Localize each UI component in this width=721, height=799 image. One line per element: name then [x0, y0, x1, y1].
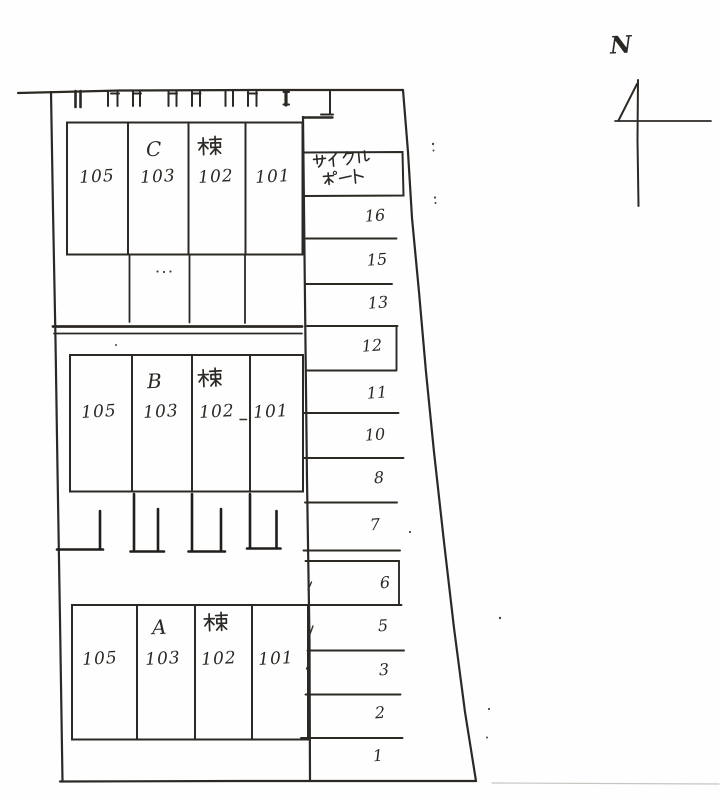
fence-double-line — [53, 327, 302, 334]
cycle-port-label-line2: ポート — [322, 170, 367, 185]
parking-stall-label-2: 2 — [364, 704, 395, 722]
building-b-letter: B — [147, 371, 162, 392]
building-c-suffix: 棟 — [196, 134, 218, 156]
parking-stall-label-11: 11 — [361, 384, 392, 402]
north-label: N — [609, 32, 632, 57]
unit-label-c-102: 102 — [193, 168, 240, 187]
unit-label-b-101: 101 — [248, 403, 295, 422]
unit-label-a-101: 101 — [253, 650, 300, 669]
building-a-letter: A — [152, 617, 167, 637]
plan-linework — [0, 0, 721, 799]
unit-label-b-103: 103 — [138, 403, 185, 422]
parking-stall-label-3: 3 — [368, 661, 399, 679]
building-c-letter: C — [146, 139, 162, 160]
unit-label-c-103: 103 — [135, 168, 182, 187]
unit-label-b-105: 105 — [76, 403, 123, 422]
parking-stall-label-15: 15 — [361, 251, 392, 269]
north-arrow — [615, 80, 711, 206]
parking-stall-label-8: 8 — [363, 469, 394, 487]
parking-stall-label-6: 6 — [369, 574, 400, 592]
north-fence-stubs — [76, 91, 334, 118]
parking-stall-label-10: 10 — [359, 426, 390, 444]
site-plan-scan: N C 棟 105 103 102 101 B 棟 105 103 102 10… — [0, 0, 721, 799]
porch-structures — [57, 494, 281, 552]
unit-label-c-101: 101 — [250, 168, 297, 187]
unit-label-c-105: 105 — [74, 168, 121, 187]
parking-stall-label-5: 5 — [367, 617, 398, 635]
parking-stall-label-12: 12 — [356, 337, 387, 355]
parking-stall-label-1: 1 — [362, 747, 393, 765]
parking-stall-label-16: 16 — [359, 207, 390, 225]
building-a-suffix: 棟 — [202, 610, 224, 632]
unit-label-a-103: 103 — [140, 650, 187, 669]
building-c-outline — [67, 123, 303, 324]
unit-label-a-105: 105 — [77, 650, 124, 669]
unit-label-a-102: 102 — [196, 650, 243, 669]
building-b-suffix: 棟 — [196, 366, 218, 388]
building-b-outline — [70, 355, 303, 492]
cycle-port-label-line1: サイクル — [312, 152, 371, 167]
building-a-outline — [72, 605, 308, 740]
parking-stall-label-13: 13 — [362, 294, 393, 312]
unit-label-b-102: 102 — [194, 403, 241, 422]
parking-stall-label-7: 7 — [359, 516, 390, 534]
